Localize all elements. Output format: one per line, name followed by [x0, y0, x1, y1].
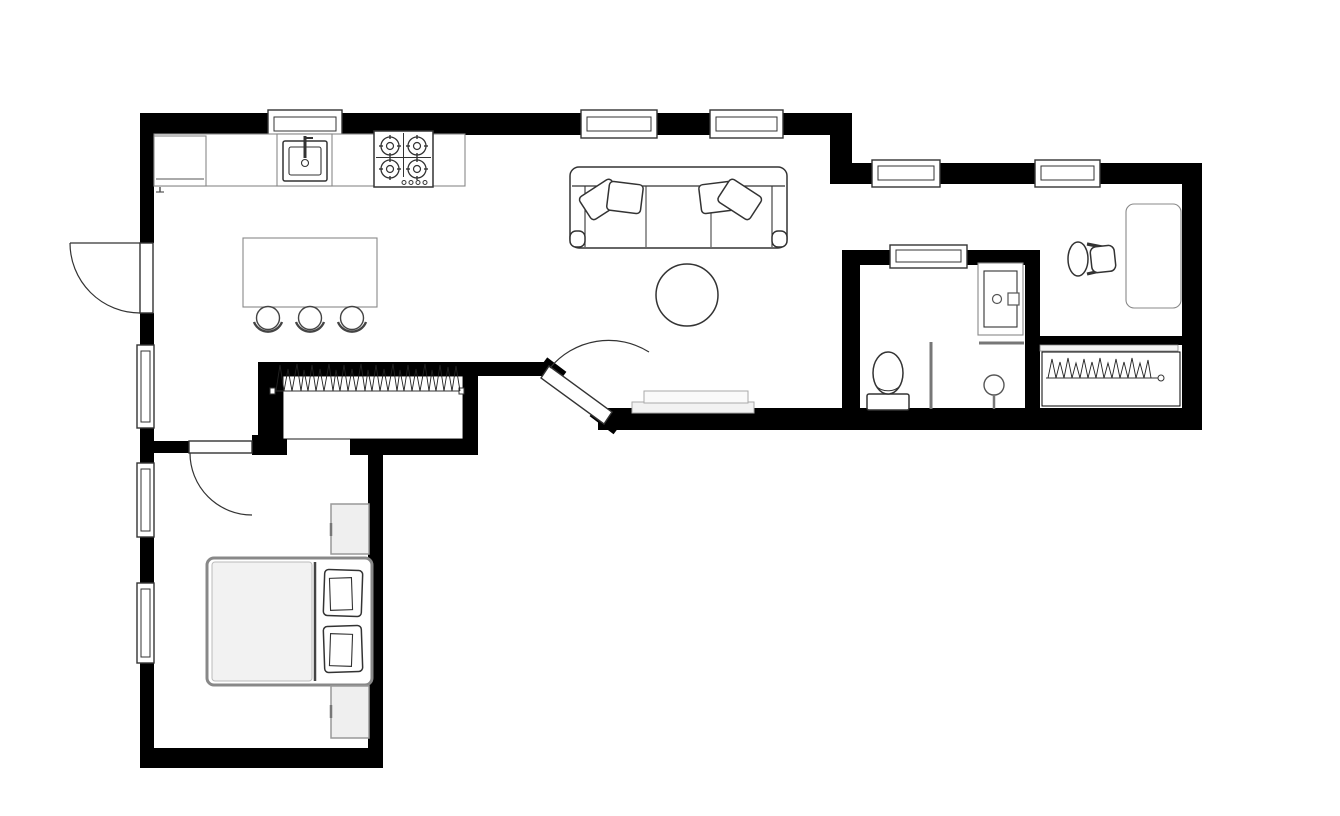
wall-right: [1182, 163, 1202, 430]
window-office-top-2: [1035, 160, 1100, 187]
chair-seat: [1068, 242, 1088, 276]
refrigerator: [154, 136, 206, 192]
wall-left-upper: [140, 113, 154, 243]
wall-closet-bottom: [350, 437, 478, 455]
floor-plan-canvas: [0, 0, 1340, 816]
kitchen-island: [243, 238, 377, 307]
round-coffee-table: [656, 264, 718, 326]
bar-stool-3: [341, 307, 364, 330]
bar-stool-2: [299, 307, 322, 330]
bed-mattress: [212, 562, 312, 681]
floor-plan-drawing: [0, 0, 1340, 816]
sofa: [570, 167, 787, 248]
double-bed: [207, 558, 372, 685]
sofa-foot-left: [570, 231, 585, 247]
office-closet: [1042, 352, 1180, 406]
bedroom-door-leaf: [189, 441, 252, 453]
window-left-bedroom-2: [137, 583, 154, 663]
stove-4-burner: [374, 131, 433, 187]
vanity-handle: [1008, 293, 1019, 305]
wall-bathroom-left: [842, 250, 860, 410]
entry-door-swing-arc: [550, 340, 649, 368]
window-left-bedroom-1: [137, 463, 154, 537]
bar-stool-1: [257, 307, 280, 330]
kitchen-door-leaf: [140, 243, 153, 313]
wall-step: [830, 113, 852, 184]
chair-back: [1090, 245, 1117, 273]
wall-bedroom-north-left: [140, 441, 189, 453]
bedroom: [207, 504, 372, 738]
window-left-kitchen: [137, 345, 154, 428]
kitchen-door-swing-arc: [70, 243, 140, 313]
bedroom-door: [189, 441, 252, 515]
kitchen-exterior-door: [70, 243, 153, 313]
bed-pillow-bottom: [323, 625, 363, 672]
shower-head-icon: [984, 375, 1004, 395]
desk: [1126, 204, 1181, 308]
bar-stools: [254, 307, 366, 332]
shower: [931, 342, 1024, 409]
nightstand-top: [331, 504, 369, 554]
toilet: [867, 352, 909, 410]
vanity-sink: [978, 263, 1023, 335]
wall-left-seg4: [140, 537, 154, 583]
kitchen: [154, 131, 465, 332]
window-bathroom-transom: [890, 245, 967, 268]
window-living-top-1: [581, 110, 657, 138]
window-office-top-1: [872, 160, 940, 187]
office-nook: [1040, 204, 1181, 406]
office-chair: [1068, 242, 1116, 276]
throw-pillow-2: [606, 181, 643, 214]
bathroom: [867, 263, 1024, 410]
toilet-tank: [867, 394, 909, 410]
bedroom-door-swing-arc: [190, 453, 252, 515]
bed-pillow-top: [323, 569, 363, 616]
wall-office-closet-divider: [1038, 336, 1184, 345]
closet-sliding-track: [1040, 345, 1178, 351]
kitchen-sink: [277, 134, 332, 186]
wall-bedroom-south: [140, 748, 383, 768]
wall-closet-left: [258, 376, 283, 440]
wall-bathroom-right: [1025, 250, 1040, 410]
sofa-foot-right: [772, 231, 787, 247]
window-living-top-2: [710, 110, 783, 138]
tv-console: [632, 391, 754, 413]
vanity-knob-icon: [993, 295, 1002, 304]
entry-door-leaf: [541, 366, 612, 424]
living-room: [570, 167, 787, 413]
wall-closet-top: [258, 362, 548, 376]
nightstand-bottom: [331, 686, 369, 738]
wall-left-seg2: [140, 313, 154, 345]
